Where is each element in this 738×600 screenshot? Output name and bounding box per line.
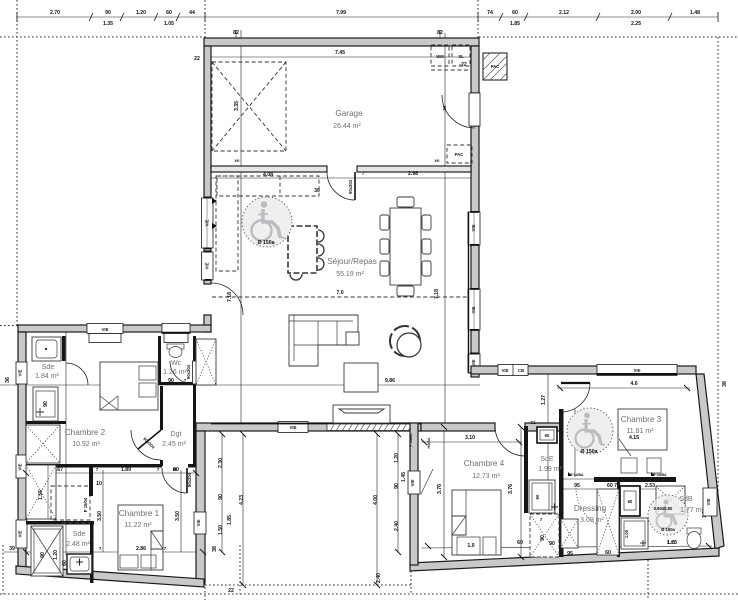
- svg-text:95: 95: [574, 483, 580, 489]
- svg-text:60: 60: [628, 499, 633, 504]
- svg-text:90: 90: [40, 552, 46, 558]
- svg-text:1.50: 1.50: [218, 525, 224, 535]
- svg-text:36: 36: [5, 377, 11, 383]
- svg-text:60: 60: [512, 10, 518, 16]
- svg-text:VIE: VIE: [471, 306, 476, 313]
- svg-text:VIE: VIE: [706, 498, 711, 505]
- svg-text:P 04/BA: P 04/BA: [653, 473, 667, 477]
- svg-text:90: 90: [394, 483, 400, 489]
- svg-text:4.08: 4.08: [263, 172, 273, 178]
- svg-text:Chambre 2: Chambre 2: [65, 428, 106, 437]
- svg-text:PAC: PAC: [491, 64, 500, 69]
- svg-text:VIE: VIE: [18, 530, 23, 537]
- svg-text:1.45: 1.45: [401, 472, 407, 482]
- svg-text:Ø 150a: Ø 150a: [580, 449, 597, 455]
- svg-text:2.86: 2.86: [136, 546, 146, 552]
- svg-text:90: 90: [442, 105, 447, 110]
- svg-text:90x204: 90x204: [348, 179, 353, 194]
- svg-text:Dressing: Dressing: [574, 504, 607, 513]
- svg-text:60: 60: [545, 433, 550, 438]
- svg-text:P 15/04: P 15/04: [83, 497, 88, 512]
- svg-text:2.40: 2.40: [376, 573, 382, 583]
- svg-text:Dgt: Dgt: [171, 431, 182, 438]
- svg-text:VIE: VIE: [205, 262, 210, 269]
- svg-text:Ø 150a: Ø 150a: [257, 240, 274, 246]
- svg-text:VIE: VIE: [501, 368, 508, 373]
- svg-text:vo: vo: [435, 158, 440, 163]
- svg-text:2.53: 2.53: [645, 483, 655, 489]
- svg-text:95: 95: [567, 551, 573, 557]
- svg-text:1.77 m²: 1.77 m²: [680, 507, 704, 514]
- svg-text:CB: CB: [518, 368, 524, 373]
- svg-text:60: 60: [517, 540, 523, 546]
- svg-text:3.50: 3.50: [97, 511, 103, 521]
- svg-text:C1: C1: [530, 420, 536, 425]
- svg-text:1.26 m²: 1.26 m²: [163, 369, 187, 376]
- svg-text:-22: -22: [459, 62, 467, 68]
- svg-text:PAC: PAC: [455, 152, 464, 157]
- svg-text:82: 82: [437, 30, 443, 36]
- svg-text:2.40: 2.40: [394, 521, 400, 531]
- svg-text:Sde: Sde: [42, 364, 55, 371]
- svg-text:3.10: 3.10: [465, 435, 475, 441]
- svg-text:1.99 m²: 1.99 m²: [538, 466, 562, 473]
- svg-text:VIE: VIE: [205, 219, 210, 226]
- svg-text:2.48 m²: 2.48 m²: [66, 541, 90, 548]
- svg-text:38: 38: [722, 381, 728, 387]
- svg-text:VIE: VIE: [289, 425, 296, 430]
- svg-text:22: 22: [228, 588, 234, 594]
- svg-text:Séjour/Repas: Séjour/Repas: [327, 257, 377, 266]
- svg-text:4.00: 4.00: [373, 495, 379, 505]
- svg-text:4.23: 4.23: [239, 495, 245, 505]
- svg-text:1.85: 1.85: [227, 515, 233, 525]
- svg-text:60: 60: [535, 494, 540, 499]
- svg-text:3.35: 3.35: [234, 101, 240, 111]
- svg-text:1.20: 1.20: [136, 10, 146, 16]
- svg-text:7.18: 7.18: [434, 289, 440, 299]
- svg-text:2.45 m²: 2.45 m²: [162, 441, 186, 448]
- svg-text:3.50: 3.50: [175, 511, 181, 521]
- svg-text:90: 90: [540, 535, 546, 541]
- svg-text:Chambre 4: Chambre 4: [464, 459, 505, 468]
- svg-text:Garage: Garage: [335, 109, 363, 118]
- svg-text:VIE: VIE: [410, 479, 415, 486]
- svg-text:P 04/BA: P 04/BA: [570, 473, 584, 477]
- svg-text:90: 90: [105, 10, 111, 16]
- svg-text:4.6: 4.6: [630, 381, 637, 387]
- svg-text:Chambre 1: Chambre 1: [119, 509, 160, 518]
- svg-text:90: 90: [43, 401, 49, 407]
- svg-text:3.76: 3.76: [437, 484, 443, 494]
- svg-text:Wc: Wc: [171, 360, 182, 367]
- svg-text:44: 44: [189, 10, 195, 16]
- svg-text:SdE: SdE: [540, 456, 554, 463]
- svg-text:4.15: 4.15: [629, 435, 639, 441]
- svg-text:7.18: 7.18: [227, 292, 233, 302]
- svg-text:11.81 m²: 11.81 m²: [626, 428, 654, 435]
- svg-text:7.99: 7.99: [336, 10, 346, 16]
- svg-text:11.22 m²: 11.22 m²: [124, 522, 152, 529]
- svg-text:1.05: 1.05: [164, 21, 174, 27]
- svg-text:2.25: 2.25: [631, 21, 641, 27]
- svg-text:3.09 m²: 3.09 m²: [580, 517, 604, 524]
- svg-text:9.86: 9.86: [385, 378, 395, 384]
- svg-text:WM: WM: [436, 54, 444, 59]
- svg-text:2.30: 2.30: [218, 458, 224, 468]
- svg-text:1.48: 1.48: [690, 10, 700, 16]
- svg-text:2.98: 2.98: [408, 171, 418, 177]
- svg-text:1.73: 1.73: [667, 540, 676, 545]
- svg-text:10.92 m²: 10.92 m²: [72, 441, 100, 448]
- svg-text:55.19 m²: 55.19 m²: [336, 271, 364, 278]
- svg-text:HS/BA: HS/BA: [427, 437, 431, 448]
- svg-text:10: 10: [96, 481, 102, 487]
- svg-text:1.20: 1.20: [53, 550, 59, 560]
- svg-text:12.73 m²: 12.73 m²: [472, 473, 500, 480]
- svg-text:1.85: 1.85: [510, 21, 520, 27]
- svg-text:SdB: SdB: [679, 496, 693, 503]
- svg-text:Ø 150a: Ø 150a: [661, 527, 675, 532]
- svg-text:7.0: 7.0: [336, 290, 343, 296]
- svg-text:2.12: 2.12: [559, 10, 569, 16]
- svg-text:VIE: VIE: [471, 224, 476, 231]
- svg-text:22: 22: [194, 56, 200, 62]
- svg-text:2.70: 2.70: [50, 10, 60, 16]
- svg-text:1.56: 1.56: [38, 490, 44, 500]
- svg-text:VIE: VIE: [633, 368, 640, 373]
- svg-text:VIE: VIE: [18, 463, 23, 470]
- svg-text:vo: vo: [235, 158, 240, 163]
- svg-text:0.80x0.80: 0.80x0.80: [654, 506, 673, 511]
- svg-text:60: 60: [605, 550, 611, 556]
- svg-text:1.89: 1.89: [121, 467, 131, 473]
- svg-text:SL: SL: [458, 54, 464, 59]
- svg-text:Chambre 3: Chambre 3: [621, 415, 662, 424]
- svg-text:VIE: VIE: [101, 327, 108, 332]
- svg-text:90: 90: [218, 494, 224, 500]
- svg-text:38: 38: [212, 546, 218, 552]
- svg-text:2.00: 2.00: [631, 10, 641, 16]
- svg-text:1.35: 1.35: [103, 21, 113, 27]
- svg-text:60: 60: [62, 560, 68, 566]
- svg-text:26.44 m²: 26.44 m²: [333, 123, 361, 130]
- svg-text:82: 82: [233, 30, 239, 36]
- svg-text:90x204: 90x204: [187, 472, 192, 487]
- svg-text:Sde: Sde: [73, 531, 86, 538]
- svg-text:1.0: 1.0: [467, 543, 474, 549]
- svg-text:90: 90: [549, 541, 555, 547]
- svg-text:74: 74: [487, 10, 493, 16]
- svg-text:60: 60: [166, 10, 172, 16]
- svg-text:1.27: 1.27: [541, 395, 547, 405]
- svg-text:90: 90: [173, 467, 178, 472]
- svg-text:3.76: 3.76: [508, 484, 514, 494]
- svg-text:P 04/BA: P 04/BA: [409, 433, 413, 447]
- svg-text:1.20: 1.20: [394, 453, 400, 463]
- svg-text:VIE: VIE: [18, 369, 23, 376]
- svg-text:VIE: VIE: [196, 519, 201, 526]
- svg-text:39: 39: [9, 546, 15, 552]
- svg-text:60 7: 60 7: [607, 483, 617, 489]
- svg-text:1.84 m²: 1.84 m²: [35, 373, 59, 380]
- svg-text:1.00: 1.00: [624, 529, 629, 538]
- svg-text:7.45: 7.45: [335, 50, 345, 56]
